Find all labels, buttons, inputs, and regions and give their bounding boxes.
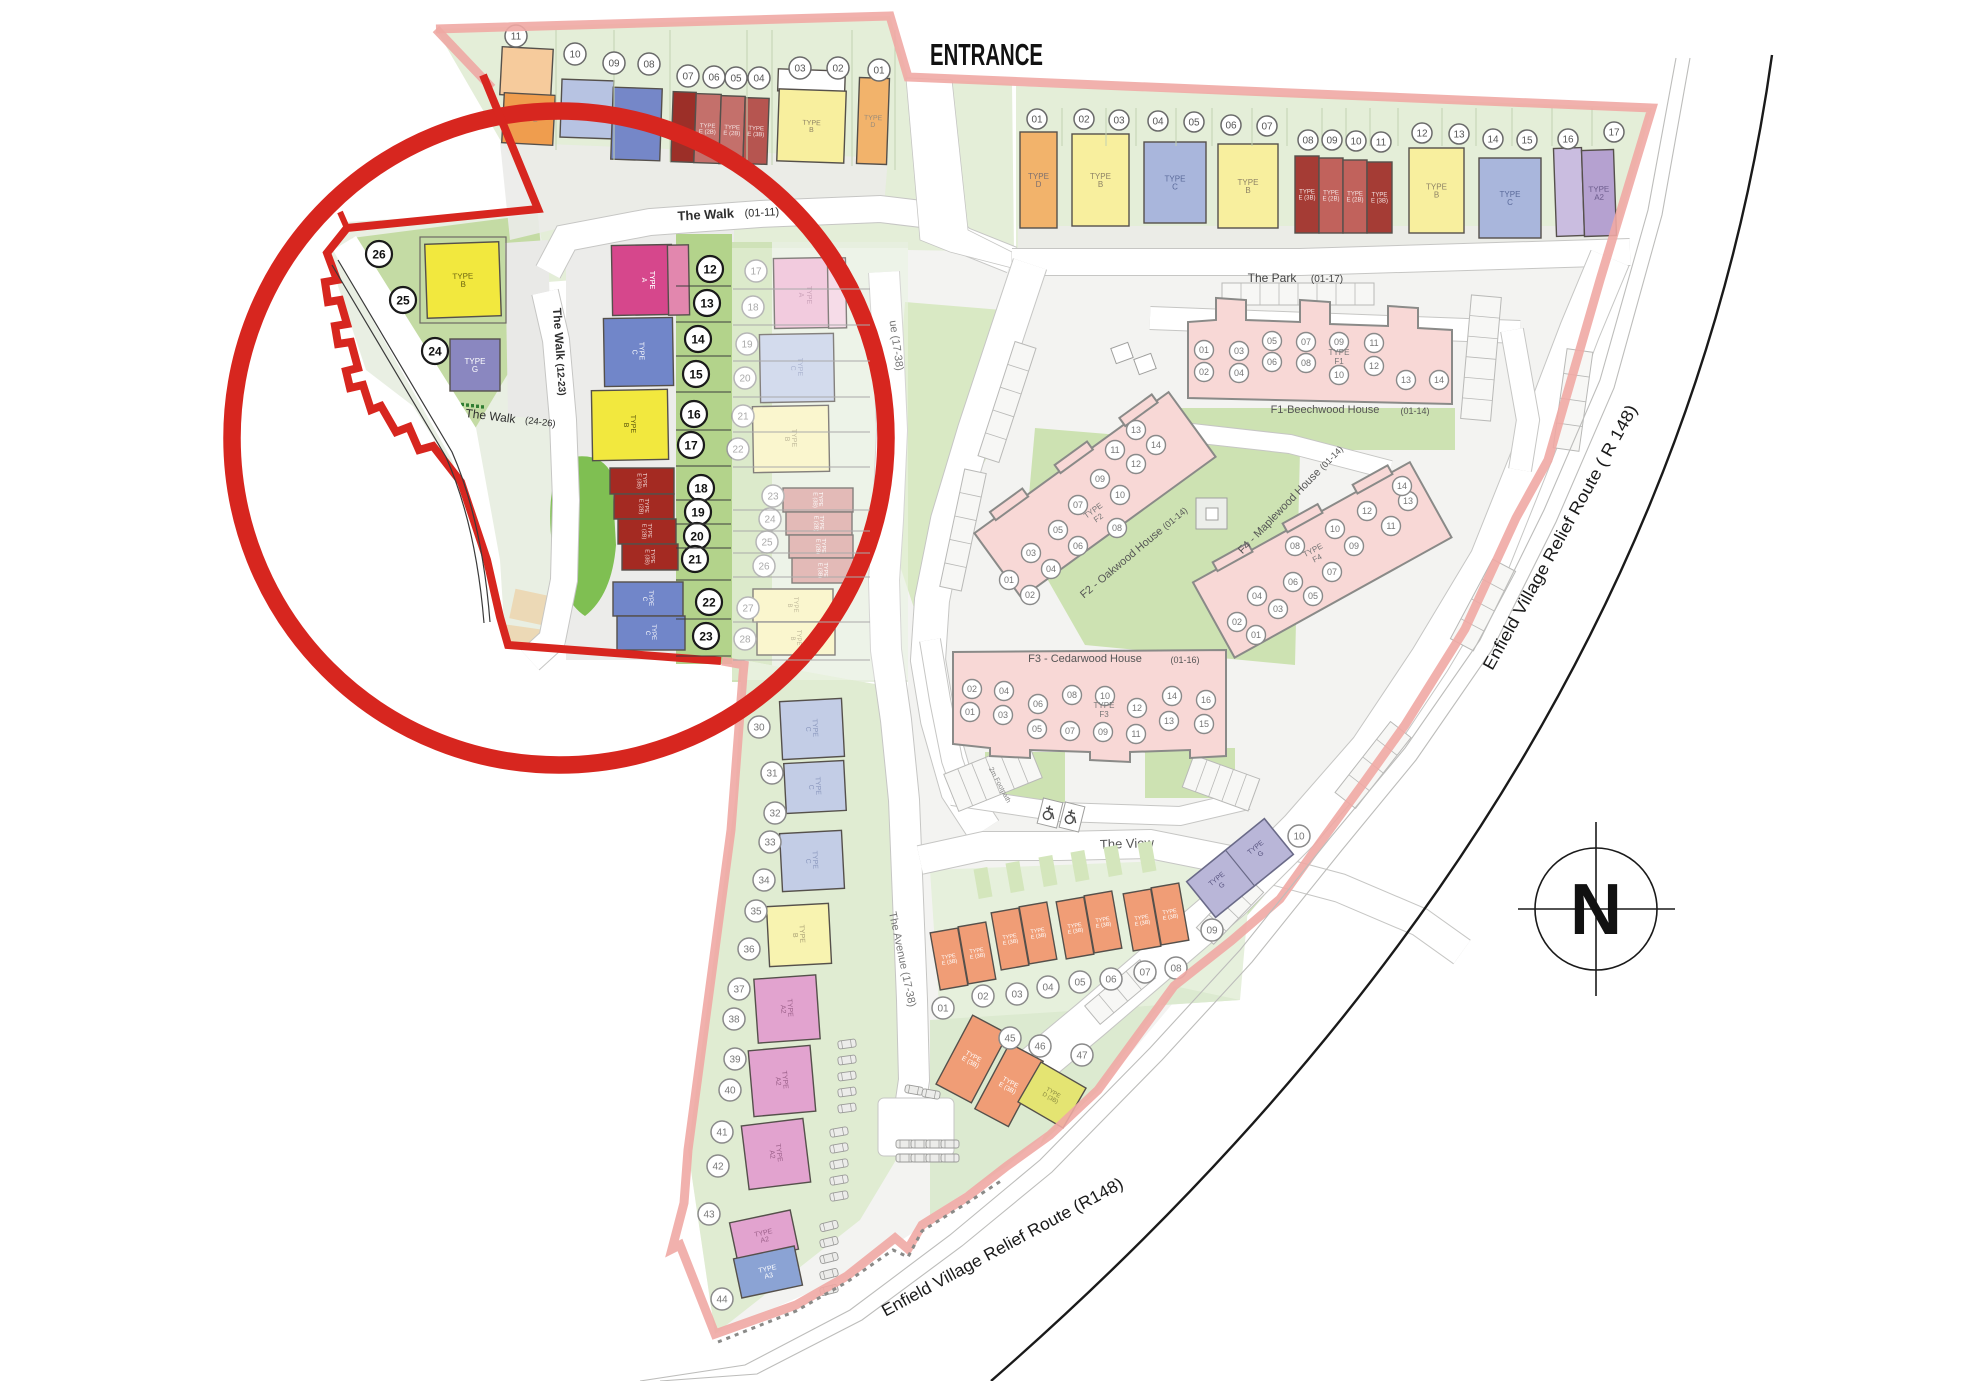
- svg-text:04: 04: [753, 74, 765, 85]
- svg-text:12: 12: [1362, 506, 1372, 516]
- svg-text:08: 08: [643, 60, 655, 71]
- svg-text:C: C: [1172, 182, 1178, 191]
- svg-text:TYPE E (3B): TYPE E (3B): [643, 549, 655, 565]
- svg-text:40: 40: [724, 1086, 736, 1097]
- svg-text:TYPE E (2B): TYPE E (2B): [637, 499, 649, 515]
- svg-text:03: 03: [1273, 604, 1283, 614]
- svg-text:04: 04: [1046, 564, 1056, 574]
- svg-text:07: 07: [1301, 337, 1311, 347]
- svg-text:02: 02: [832, 64, 844, 75]
- svg-text:E (2B): E (2B): [723, 131, 740, 138]
- svg-text:22: 22: [702, 595, 716, 609]
- svg-text:02: 02: [1078, 115, 1090, 126]
- svg-text:The Walk: The Walk: [677, 205, 735, 223]
- svg-text:43: 43: [703, 1210, 715, 1221]
- svg-text:14: 14: [691, 332, 705, 346]
- svg-text:25: 25: [396, 293, 410, 307]
- svg-text:01: 01: [937, 1004, 949, 1015]
- svg-text:13: 13: [1401, 375, 1411, 385]
- svg-text:24: 24: [428, 344, 442, 358]
- svg-text:F1-Beechwood House: F1-Beechwood House: [1271, 404, 1380, 416]
- svg-text:B: B: [1098, 180, 1103, 189]
- svg-text:D: D: [1036, 180, 1042, 189]
- svg-text:G: G: [472, 365, 478, 374]
- svg-text:15: 15: [1199, 719, 1209, 729]
- svg-text:12: 12: [1131, 459, 1141, 469]
- svg-text:46: 46: [1034, 1042, 1046, 1053]
- svg-text:38: 38: [728, 1015, 740, 1026]
- svg-text:17: 17: [1608, 128, 1620, 139]
- svg-text:D: D: [870, 122, 875, 129]
- svg-text:TYPE E (2B): TYPE E (2B): [640, 524, 652, 540]
- svg-text:14: 14: [1487, 135, 1499, 146]
- svg-text:45: 45: [1004, 1034, 1016, 1045]
- svg-text:21: 21: [688, 552, 702, 566]
- svg-text:B: B: [809, 127, 814, 134]
- svg-text:34: 34: [758, 876, 770, 887]
- svg-text:11: 11: [1110, 445, 1119, 455]
- svg-text:10: 10: [1293, 832, 1305, 843]
- svg-text:05: 05: [730, 74, 742, 85]
- svg-text:39: 39: [729, 1055, 741, 1066]
- svg-text:01: 01: [1031, 115, 1043, 126]
- svg-text:13: 13: [700, 296, 714, 310]
- svg-text:08: 08: [1301, 358, 1311, 368]
- svg-text:02: 02: [977, 992, 989, 1003]
- svg-text:(01-11): (01-11): [744, 206, 779, 220]
- svg-text:09: 09: [1349, 541, 1359, 551]
- svg-text:03: 03: [794, 64, 806, 75]
- svg-text:09: 09: [1206, 926, 1218, 937]
- svg-text:23: 23: [699, 629, 713, 643]
- svg-text:08: 08: [1170, 964, 1182, 975]
- svg-text:13: 13: [1164, 716, 1174, 726]
- svg-text:04: 04: [999, 686, 1009, 696]
- svg-text:10: 10: [1350, 137, 1362, 148]
- svg-text:01: 01: [965, 707, 975, 717]
- svg-text:01: 01: [1251, 630, 1261, 640]
- svg-text:20: 20: [690, 529, 704, 543]
- svg-text:03: 03: [1234, 346, 1244, 356]
- svg-text:05: 05: [1053, 525, 1063, 535]
- svg-text:07: 07: [1139, 968, 1151, 979]
- svg-text:05: 05: [1074, 978, 1086, 989]
- svg-text:07: 07: [1065, 726, 1075, 736]
- svg-text:06: 06: [1105, 975, 1117, 986]
- svg-text:E (3B): E (3B): [1371, 199, 1388, 205]
- svg-text:11: 11: [1131, 729, 1140, 739]
- svg-text:A2: A2: [1594, 193, 1605, 202]
- svg-text:02: 02: [1199, 367, 1209, 377]
- svg-text:11: 11: [1386, 521, 1395, 531]
- svg-text:06: 06: [1225, 121, 1237, 132]
- svg-text:15: 15: [1521, 136, 1533, 147]
- svg-text:12: 12: [703, 262, 717, 276]
- svg-text:08: 08: [1112, 523, 1122, 533]
- svg-text:04: 04: [1152, 117, 1164, 128]
- svg-text:07: 07: [1073, 500, 1083, 510]
- svg-text:(01-16): (01-16): [1170, 655, 1199, 665]
- svg-text:04: 04: [1252, 591, 1262, 601]
- svg-text:36: 36: [743, 945, 755, 956]
- svg-text:13: 13: [1453, 130, 1465, 141]
- svg-text:The Park: The Park: [1248, 271, 1298, 285]
- svg-text:08: 08: [1302, 136, 1314, 147]
- svg-text:02: 02: [1232, 617, 1242, 627]
- svg-text:F3 - Cedarwood House: F3 - Cedarwood House: [1028, 653, 1142, 665]
- svg-text:03: 03: [1113, 116, 1125, 127]
- svg-text:26: 26: [372, 247, 386, 261]
- svg-text:16: 16: [687, 407, 701, 421]
- svg-text:33: 33: [764, 838, 776, 849]
- svg-text:E (3B): E (3B): [1298, 196, 1315, 202]
- svg-text:ENTRANCE: ENTRANCE: [930, 37, 1043, 72]
- svg-text:TYPE E (3B): TYPE E (3B): [635, 473, 647, 489]
- svg-text:02: 02: [967, 684, 977, 694]
- svg-text:09: 09: [608, 59, 620, 70]
- svg-text:(01-14): (01-14): [1400, 406, 1429, 416]
- svg-text:30: 30: [753, 723, 765, 734]
- svg-text:47: 47: [1076, 1051, 1088, 1062]
- svg-text:12: 12: [1369, 361, 1379, 371]
- svg-text:10: 10: [1334, 370, 1344, 380]
- svg-text:42: 42: [712, 1162, 724, 1173]
- svg-text:14: 14: [1151, 440, 1161, 450]
- svg-text:07: 07: [1327, 567, 1337, 577]
- svg-text:10: 10: [569, 50, 581, 61]
- svg-text:37: 37: [733, 985, 745, 996]
- svg-text:09: 09: [1326, 136, 1338, 147]
- svg-text:06: 06: [1267, 357, 1277, 367]
- svg-text:E (2B): E (2B): [1346, 198, 1363, 204]
- svg-text:09: 09: [1095, 474, 1105, 484]
- svg-text:06: 06: [708, 73, 720, 84]
- svg-text:11: 11: [1369, 338, 1378, 348]
- svg-text:31: 31: [766, 769, 778, 780]
- svg-text:16: 16: [1201, 695, 1211, 705]
- svg-text:B: B: [460, 280, 466, 289]
- svg-text:05: 05: [1032, 724, 1042, 734]
- svg-text:01: 01: [873, 66, 885, 77]
- svg-text:B: B: [1245, 186, 1250, 195]
- svg-text:12: 12: [1416, 129, 1428, 140]
- svg-text:03: 03: [1026, 548, 1036, 558]
- svg-text:01: 01: [1004, 575, 1014, 585]
- svg-text:06: 06: [1073, 541, 1083, 551]
- svg-text:10: 10: [1115, 490, 1125, 500]
- svg-text:11: 11: [511, 32, 522, 43]
- svg-text:04: 04: [1042, 983, 1054, 994]
- svg-text:32: 32: [769, 809, 781, 820]
- svg-text:N: N: [1570, 870, 1622, 950]
- svg-text:C: C: [1507, 198, 1513, 207]
- svg-text:10: 10: [1100, 691, 1110, 701]
- svg-text:03: 03: [1011, 990, 1023, 1001]
- svg-text:17: 17: [684, 438, 698, 452]
- svg-text:(01-17): (01-17): [1311, 274, 1343, 285]
- svg-text:09: 09: [1098, 727, 1108, 737]
- svg-text:08: 08: [1290, 541, 1300, 551]
- svg-text:16: 16: [1562, 135, 1574, 146]
- svg-text:15: 15: [689, 367, 703, 381]
- svg-text:09: 09: [1334, 337, 1344, 347]
- svg-text:10: 10: [1330, 524, 1340, 534]
- svg-text:05: 05: [1267, 336, 1277, 346]
- svg-text:44: 44: [716, 1295, 728, 1306]
- svg-text:12: 12: [1132, 703, 1142, 713]
- svg-text:E (3B): E (3B): [747, 132, 764, 139]
- svg-text:18: 18: [694, 481, 708, 495]
- svg-text:35: 35: [750, 907, 762, 918]
- svg-text:05: 05: [1308, 591, 1318, 601]
- svg-text:04: 04: [1234, 368, 1244, 378]
- svg-text:E (2B): E (2B): [1322, 197, 1339, 203]
- svg-text:08: 08: [1067, 690, 1077, 700]
- svg-text:14: 14: [1167, 691, 1177, 701]
- svg-text:06: 06: [1033, 699, 1043, 709]
- svg-text:02: 02: [1025, 590, 1035, 600]
- svg-text:19: 19: [691, 505, 705, 519]
- svg-text:07: 07: [682, 72, 694, 83]
- svg-text:05: 05: [1188, 118, 1200, 129]
- svg-text:B: B: [1434, 190, 1439, 199]
- svg-text:01: 01: [1199, 345, 1209, 355]
- svg-text:03: 03: [998, 710, 1008, 720]
- svg-text:14: 14: [1434, 375, 1444, 385]
- svg-text:41: 41: [716, 1128, 728, 1139]
- svg-text:07: 07: [1261, 122, 1273, 133]
- svg-text:06: 06: [1288, 577, 1298, 587]
- svg-text:13: 13: [1403, 496, 1413, 506]
- svg-text:11: 11: [1376, 138, 1387, 149]
- svg-text:13: 13: [1131, 425, 1141, 435]
- svg-text:14: 14: [1397, 481, 1407, 491]
